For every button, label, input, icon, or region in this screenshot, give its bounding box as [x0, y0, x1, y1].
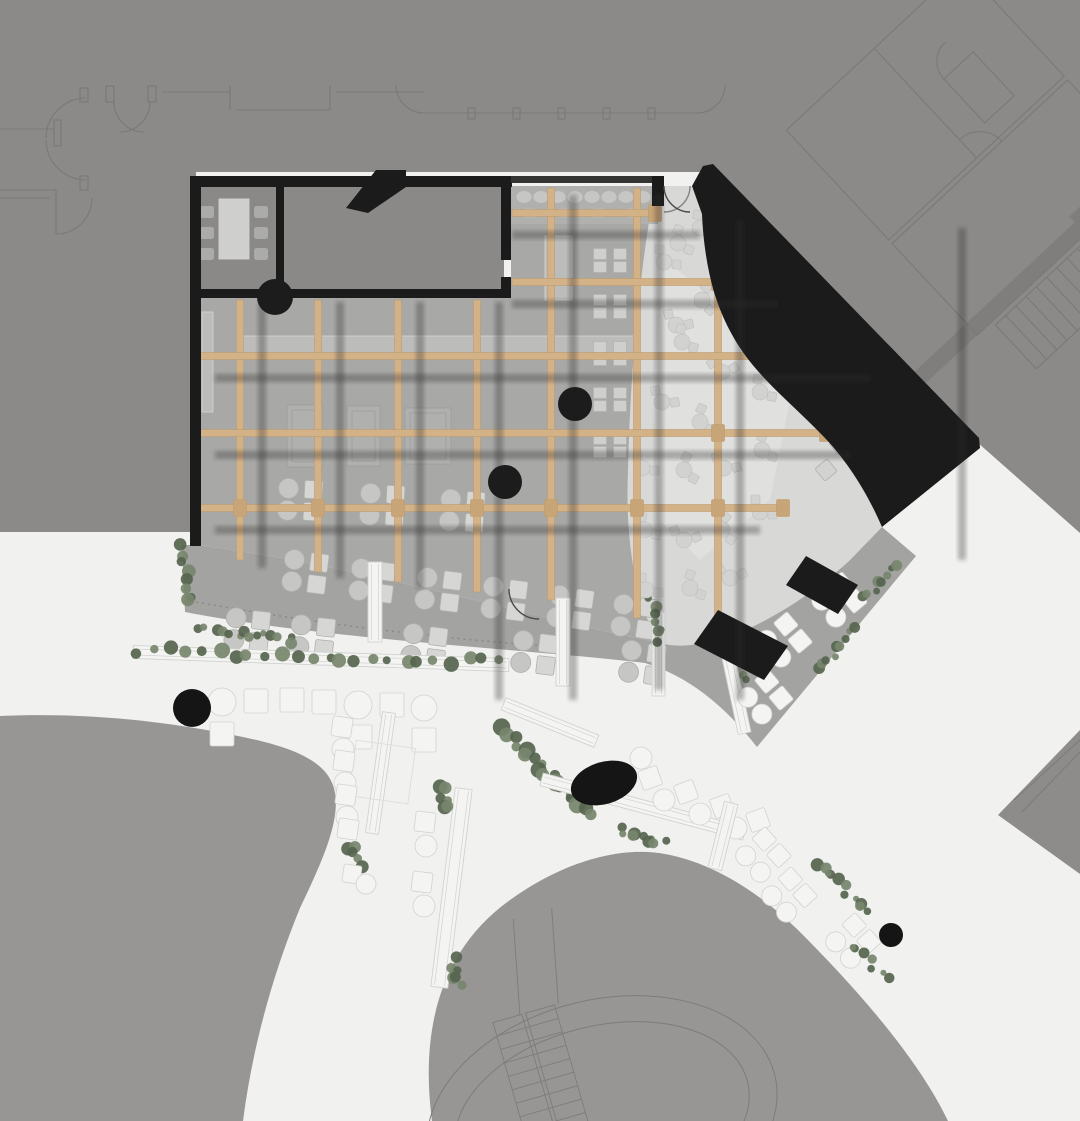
chair-square [255, 249, 268, 260]
beam-base-plate [712, 500, 725, 517]
shrub [200, 623, 207, 630]
shrub [244, 632, 254, 642]
shrub [260, 652, 269, 661]
shrub [842, 635, 850, 643]
beam-vertical [548, 188, 555, 600]
shrub [855, 901, 865, 911]
shrub [441, 800, 453, 812]
shrub [832, 653, 839, 660]
shrub [457, 981, 466, 990]
beam-horizontal [198, 353, 790, 360]
beam-shadow-horizontal [512, 231, 700, 239]
shrub [177, 557, 186, 566]
shrub [383, 656, 391, 664]
shrub [873, 588, 880, 595]
beam-base-plate [471, 500, 484, 517]
shrub [821, 656, 830, 665]
shrub [868, 954, 877, 963]
shrub [181, 593, 194, 606]
beam-vertical [395, 300, 402, 582]
table-small [594, 388, 607, 399]
wall-west [190, 176, 201, 546]
banquette-chair [601, 191, 617, 204]
beam-base-plate [712, 425, 725, 442]
beam-horizontal [512, 210, 655, 217]
chair-square [312, 690, 336, 714]
shrub [619, 830, 626, 837]
beam-base-plate [312, 500, 325, 517]
floor-plan-stage [0, 0, 1080, 1121]
chair-square [201, 207, 214, 218]
wall-kitchen-south [196, 289, 510, 298]
shrub [179, 646, 191, 658]
shrub [864, 907, 872, 915]
shrub [428, 655, 438, 665]
shrub [368, 654, 378, 664]
shrub [628, 830, 639, 841]
shrub [308, 653, 319, 664]
table-round [415, 835, 437, 857]
shrub [450, 972, 461, 983]
chair-square [414, 811, 436, 833]
beam-shadow-vertical [416, 302, 424, 588]
table-small [594, 401, 607, 412]
shrub [439, 782, 452, 795]
beam-shadow-horizontal [512, 300, 777, 308]
shrub [332, 653, 346, 667]
wall-north-thin [511, 176, 658, 183]
table-round [653, 789, 675, 811]
shrub [451, 951, 462, 962]
shrub [253, 631, 261, 639]
shrub [662, 837, 670, 845]
shrub [240, 649, 251, 660]
shrub [197, 646, 207, 656]
beam-shadow-vertical [569, 195, 577, 700]
table-round [689, 803, 711, 825]
structural-column [257, 279, 293, 315]
table-small [614, 401, 627, 412]
structural-column [488, 465, 522, 499]
table-round [208, 688, 236, 716]
table-round [411, 695, 437, 721]
chair-square [255, 207, 268, 218]
table-small [614, 342, 627, 353]
planter-bench [238, 336, 638, 353]
shrub [181, 583, 192, 594]
beam-shadow-vertical [736, 220, 744, 700]
table-small [614, 308, 627, 319]
shrub [347, 655, 359, 667]
banquette-chair [618, 191, 634, 204]
table-round [413, 895, 435, 917]
beam-vertical [634, 188, 641, 618]
banquette-chair [516, 191, 532, 204]
beam-shadow-vertical [336, 302, 344, 578]
chair-square [210, 722, 234, 746]
site-plan-canvas [0, 0, 1080, 1121]
shrub [510, 731, 522, 743]
beam-base-plate [545, 500, 558, 517]
chair-square [201, 228, 214, 239]
shrub [444, 656, 459, 671]
beam-shadow-horizontal [215, 374, 870, 382]
beam-horizontal [198, 430, 826, 437]
shrub [850, 944, 857, 951]
shrub [840, 891, 848, 899]
beam-base-plate [631, 500, 644, 517]
beam-base-plate [777, 500, 790, 517]
table-small [614, 249, 627, 260]
shrub [825, 870, 832, 877]
wall-north [190, 176, 512, 187]
table-small [594, 262, 607, 273]
chair-square [331, 716, 354, 739]
shrub [859, 947, 870, 958]
shrub [150, 645, 158, 653]
table-small [594, 249, 607, 260]
beam-vertical [474, 300, 481, 592]
shrub [876, 577, 886, 587]
chair-square [280, 688, 304, 712]
table-small [594, 342, 607, 353]
table-round [630, 747, 652, 769]
chair-square [244, 689, 268, 713]
table-round [344, 691, 372, 719]
shrub [174, 538, 187, 551]
table-round [356, 874, 376, 894]
shrub [272, 632, 281, 641]
beam-shadow-horizontal [215, 451, 850, 459]
shrub [275, 646, 290, 661]
structural-column [558, 387, 592, 421]
shrub [835, 641, 845, 651]
chair-square [255, 228, 268, 239]
shrub [867, 965, 875, 973]
table-small [594, 308, 607, 319]
shrub [285, 637, 297, 649]
beam-base-plate [234, 500, 247, 517]
chair-square [335, 784, 358, 807]
shrub [224, 630, 233, 639]
shrub [410, 656, 422, 668]
table-small [614, 388, 627, 399]
planter-bench [219, 199, 249, 259]
table-small [614, 262, 627, 273]
banquette-chair [533, 191, 549, 204]
shrub [841, 880, 851, 890]
shrub [585, 809, 597, 821]
wall-kitchen-east-upper [501, 176, 511, 260]
shrub [891, 560, 902, 571]
chair-square [333, 750, 356, 773]
tree [879, 923, 903, 947]
planter-bench [202, 312, 213, 412]
shrub [884, 973, 894, 983]
planter-bench [556, 598, 570, 686]
beam-shadow-vertical [958, 228, 966, 560]
chair-square [337, 818, 360, 841]
beam-horizontal [198, 505, 783, 512]
shrub [131, 648, 142, 659]
chair-square [201, 249, 214, 260]
beam-shadow-vertical [495, 302, 503, 700]
shrub [862, 590, 871, 599]
shrub [883, 571, 891, 579]
chair-square [411, 871, 433, 893]
beam-base-plate [392, 500, 405, 517]
shrub [164, 640, 178, 654]
wall-meeting-partition [276, 176, 284, 296]
wall-kitchen-east-lower [501, 277, 511, 298]
shrub [849, 622, 860, 633]
shrub [214, 643, 230, 659]
planter-bench [368, 562, 382, 642]
tree [173, 689, 211, 727]
shrub [475, 652, 486, 663]
banquette-chair [584, 191, 600, 204]
shrub [292, 650, 305, 663]
shrub [648, 838, 658, 848]
beam-shadow-vertical [655, 195, 663, 690]
beam-shadow-horizontal [215, 526, 760, 534]
